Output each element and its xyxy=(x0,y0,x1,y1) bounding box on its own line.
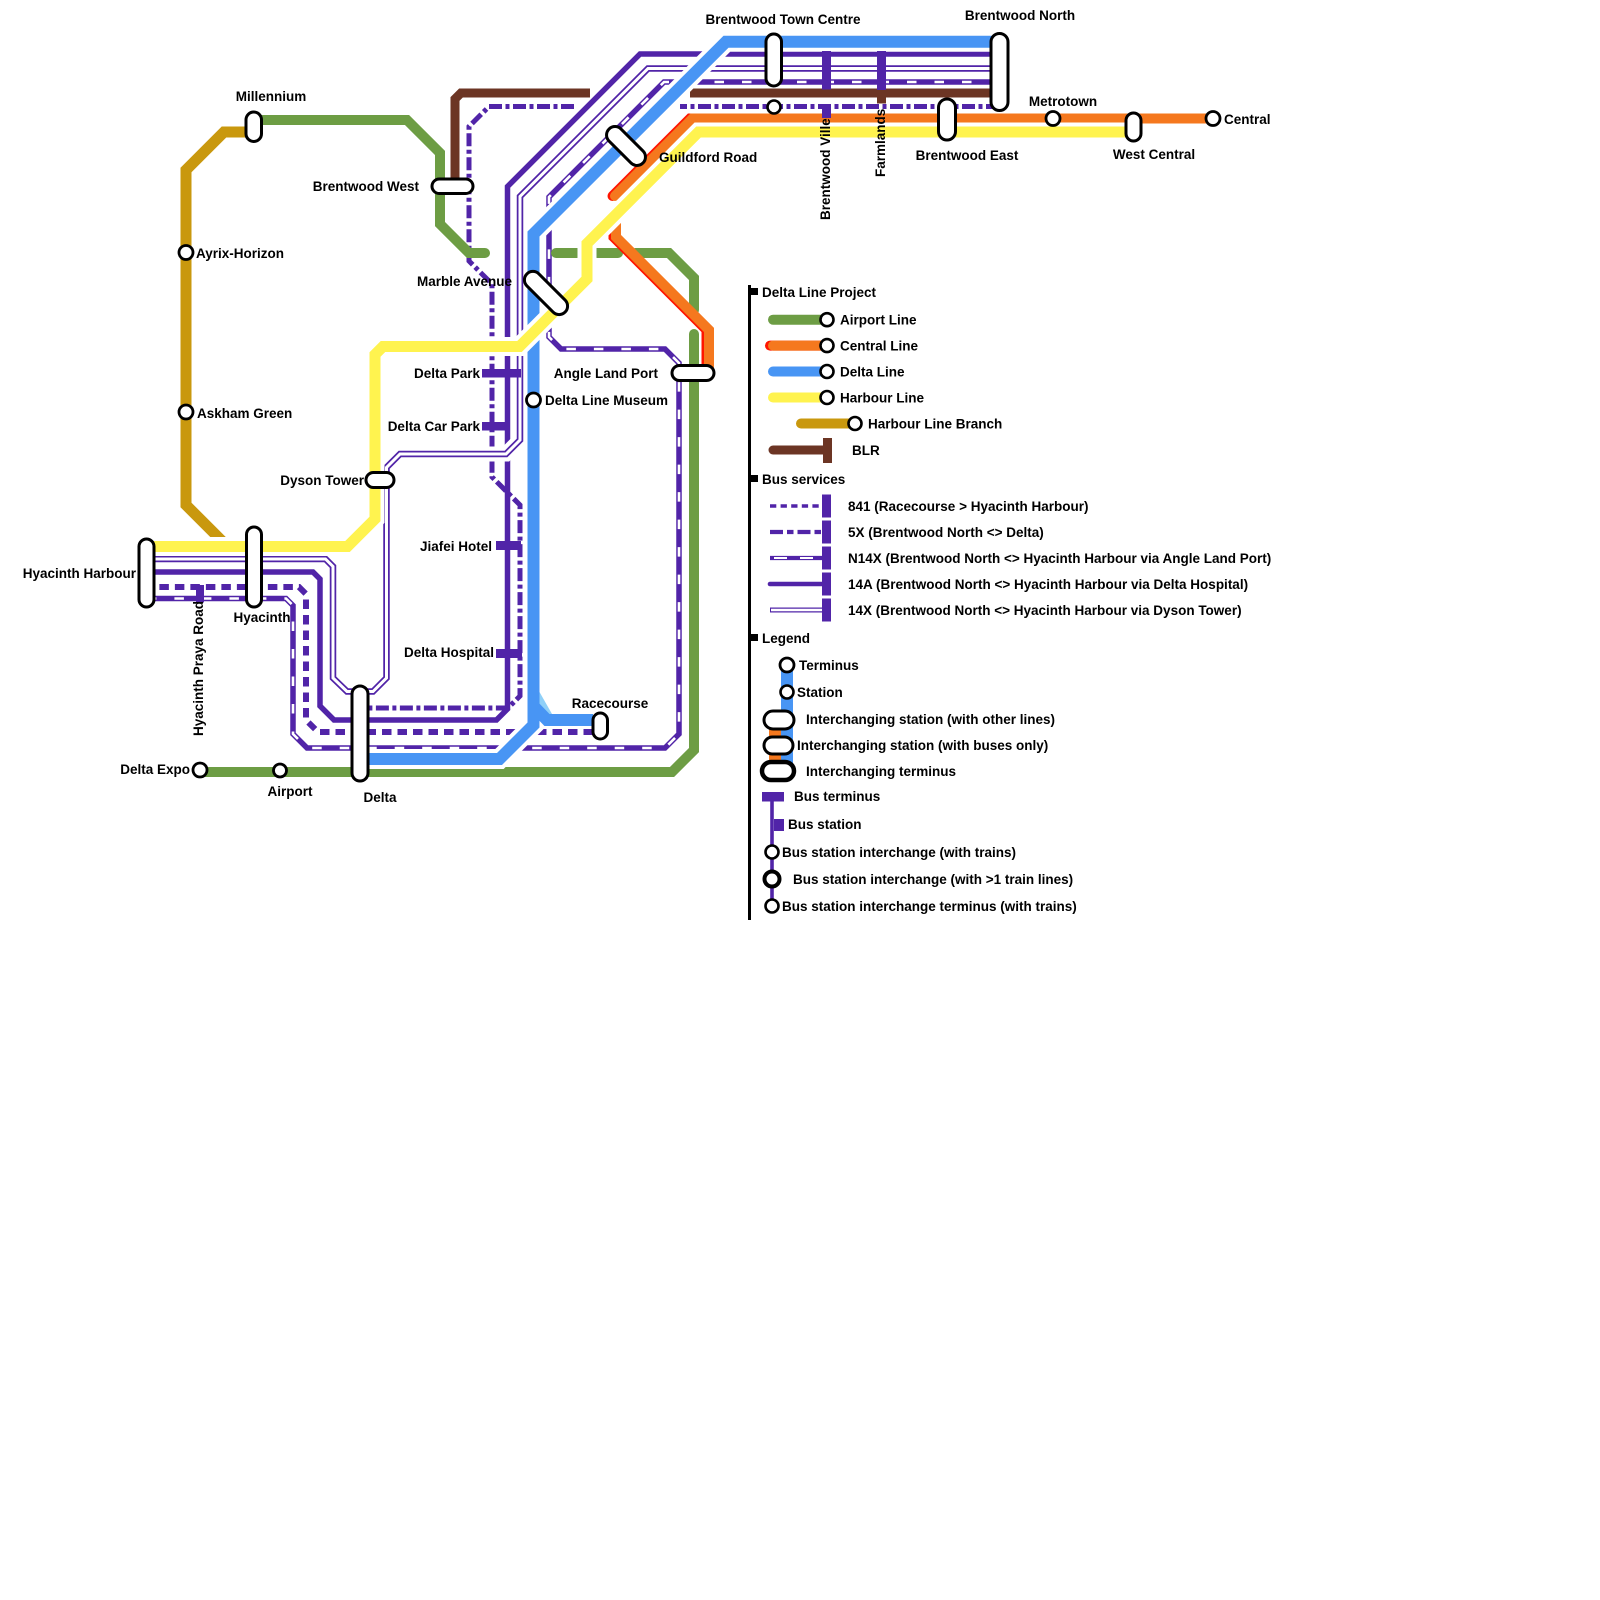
svg-text:Jiafei Hotel: Jiafei Hotel xyxy=(420,539,492,554)
svg-text:Dyson Tower: Dyson Tower xyxy=(280,473,365,488)
svg-text:Central: Central xyxy=(1224,112,1271,127)
svg-text:Bus terminus: Bus terminus xyxy=(794,789,880,804)
svg-text:Angle Land Port: Angle Land Port xyxy=(554,366,659,381)
svg-text:Harbour Line: Harbour Line xyxy=(840,391,924,406)
svg-text:N14X (Brentwood North <> Hyaci: N14X (Brentwood North <> Hyacinth Harbou… xyxy=(848,551,1271,566)
svg-text:Delta Expo: Delta Expo xyxy=(120,762,190,777)
svg-text:Brentwood East: Brentwood East xyxy=(916,148,1019,163)
svg-text:Askham Green: Askham Green xyxy=(197,406,292,421)
svg-text:Airport Line: Airport Line xyxy=(840,313,917,328)
svg-text:Terminus: Terminus xyxy=(799,658,859,673)
svg-text:Farmlands: Farmlands xyxy=(873,109,888,177)
svg-text:Delta: Delta xyxy=(363,790,397,805)
svg-text:Interchanging terminus: Interchanging terminus xyxy=(806,764,956,779)
svg-text:Delta Hospital: Delta Hospital xyxy=(404,645,494,660)
svg-text:Bus station interchange (with: Bus station interchange (with >1 train l… xyxy=(793,872,1073,887)
svg-text:Millennium: Millennium xyxy=(236,89,307,104)
svg-text:Hyacinth Harbour: Hyacinth Harbour xyxy=(23,566,137,581)
svg-text:Airport: Airport xyxy=(268,784,314,799)
svg-text:Interchanging station (with ot: Interchanging station (with other lines) xyxy=(806,712,1055,727)
svg-text:Harbour Line Branch: Harbour Line Branch xyxy=(868,417,1002,432)
svg-text:Delta Line Museum: Delta Line Museum xyxy=(545,393,668,408)
svg-text:Delta Line: Delta Line xyxy=(840,365,905,380)
svg-text:841 (Racecourse > Hyacinth Har: 841 (Racecourse > Hyacinth Harbour) xyxy=(848,499,1088,514)
svg-text:Interchanging station (with bu: Interchanging station (with buses only) xyxy=(797,738,1048,753)
svg-text:Central Line: Central Line xyxy=(840,339,919,354)
svg-text:Marble Avenue: Marble Avenue xyxy=(417,274,513,289)
svg-text:Delta Line Project: Delta Line Project xyxy=(762,285,877,300)
svg-text:Ayrix-Horizon: Ayrix-Horizon xyxy=(196,246,284,261)
svg-text:Metrotown: Metrotown xyxy=(1029,94,1097,109)
svg-text:14X (Brentwood North <> Hyacin: 14X (Brentwood North <> Hyacinth Harbour… xyxy=(848,603,1242,618)
svg-text:14A (Brentwood North <> Hyacin: 14A (Brentwood North <> Hyacinth Harbour… xyxy=(848,577,1248,592)
svg-text:Bus services: Bus services xyxy=(762,472,845,487)
svg-text:Station: Station xyxy=(797,685,843,700)
svg-text:Bus station interchange termin: Bus station interchange terminus (with t… xyxy=(782,899,1077,914)
svg-text:Delta Car Park: Delta Car Park xyxy=(388,419,481,434)
svg-text:Brentwood Town Centre: Brentwood Town Centre xyxy=(706,12,861,27)
svg-text:West Central: West Central xyxy=(1113,147,1195,162)
svg-text:Brentwood Ville: Brentwood Ville xyxy=(818,118,833,220)
svg-text:Brentwood North: Brentwood North xyxy=(965,8,1075,23)
svg-text:Legend: Legend xyxy=(762,631,810,646)
svg-text:Bus station: Bus station xyxy=(788,817,862,832)
svg-text:Hyacinth Praya Road: Hyacinth Praya Road xyxy=(191,601,206,736)
svg-text:Brentwood West: Brentwood West xyxy=(313,179,420,194)
svg-text:Bus station interchange (with: Bus station interchange (with trains) xyxy=(782,845,1016,860)
svg-text:5X (Brentwood North <> Delta): 5X (Brentwood North <> Delta) xyxy=(848,525,1044,540)
svg-text:Hyacinth: Hyacinth xyxy=(233,610,290,625)
svg-text:Delta Park: Delta Park xyxy=(414,366,481,381)
svg-text:BLR: BLR xyxy=(852,443,880,458)
svg-text:Racecourse: Racecourse xyxy=(572,696,649,711)
svg-text:Guildford Road: Guildford Road xyxy=(659,150,757,165)
